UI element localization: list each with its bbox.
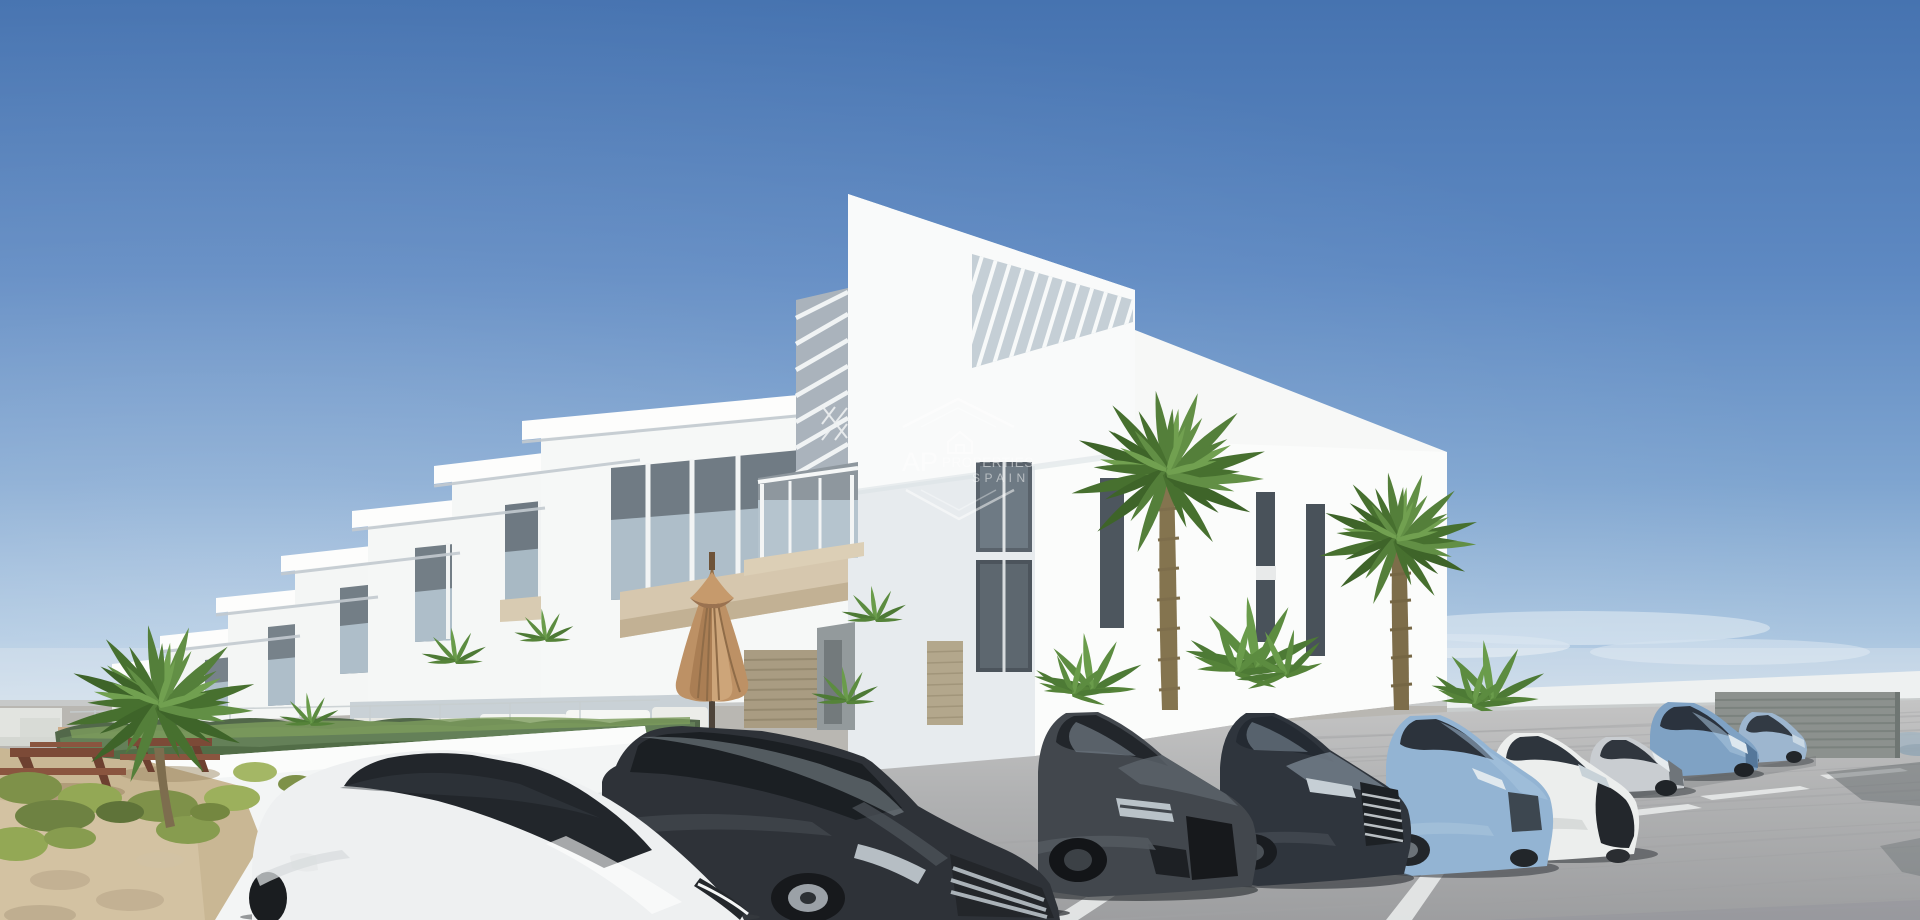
svg-text:PROPERTIES: PROPERTIES	[942, 455, 1034, 470]
svg-text:AP: AP	[902, 447, 938, 477]
svg-text:SPAIN: SPAIN	[972, 471, 1030, 485]
